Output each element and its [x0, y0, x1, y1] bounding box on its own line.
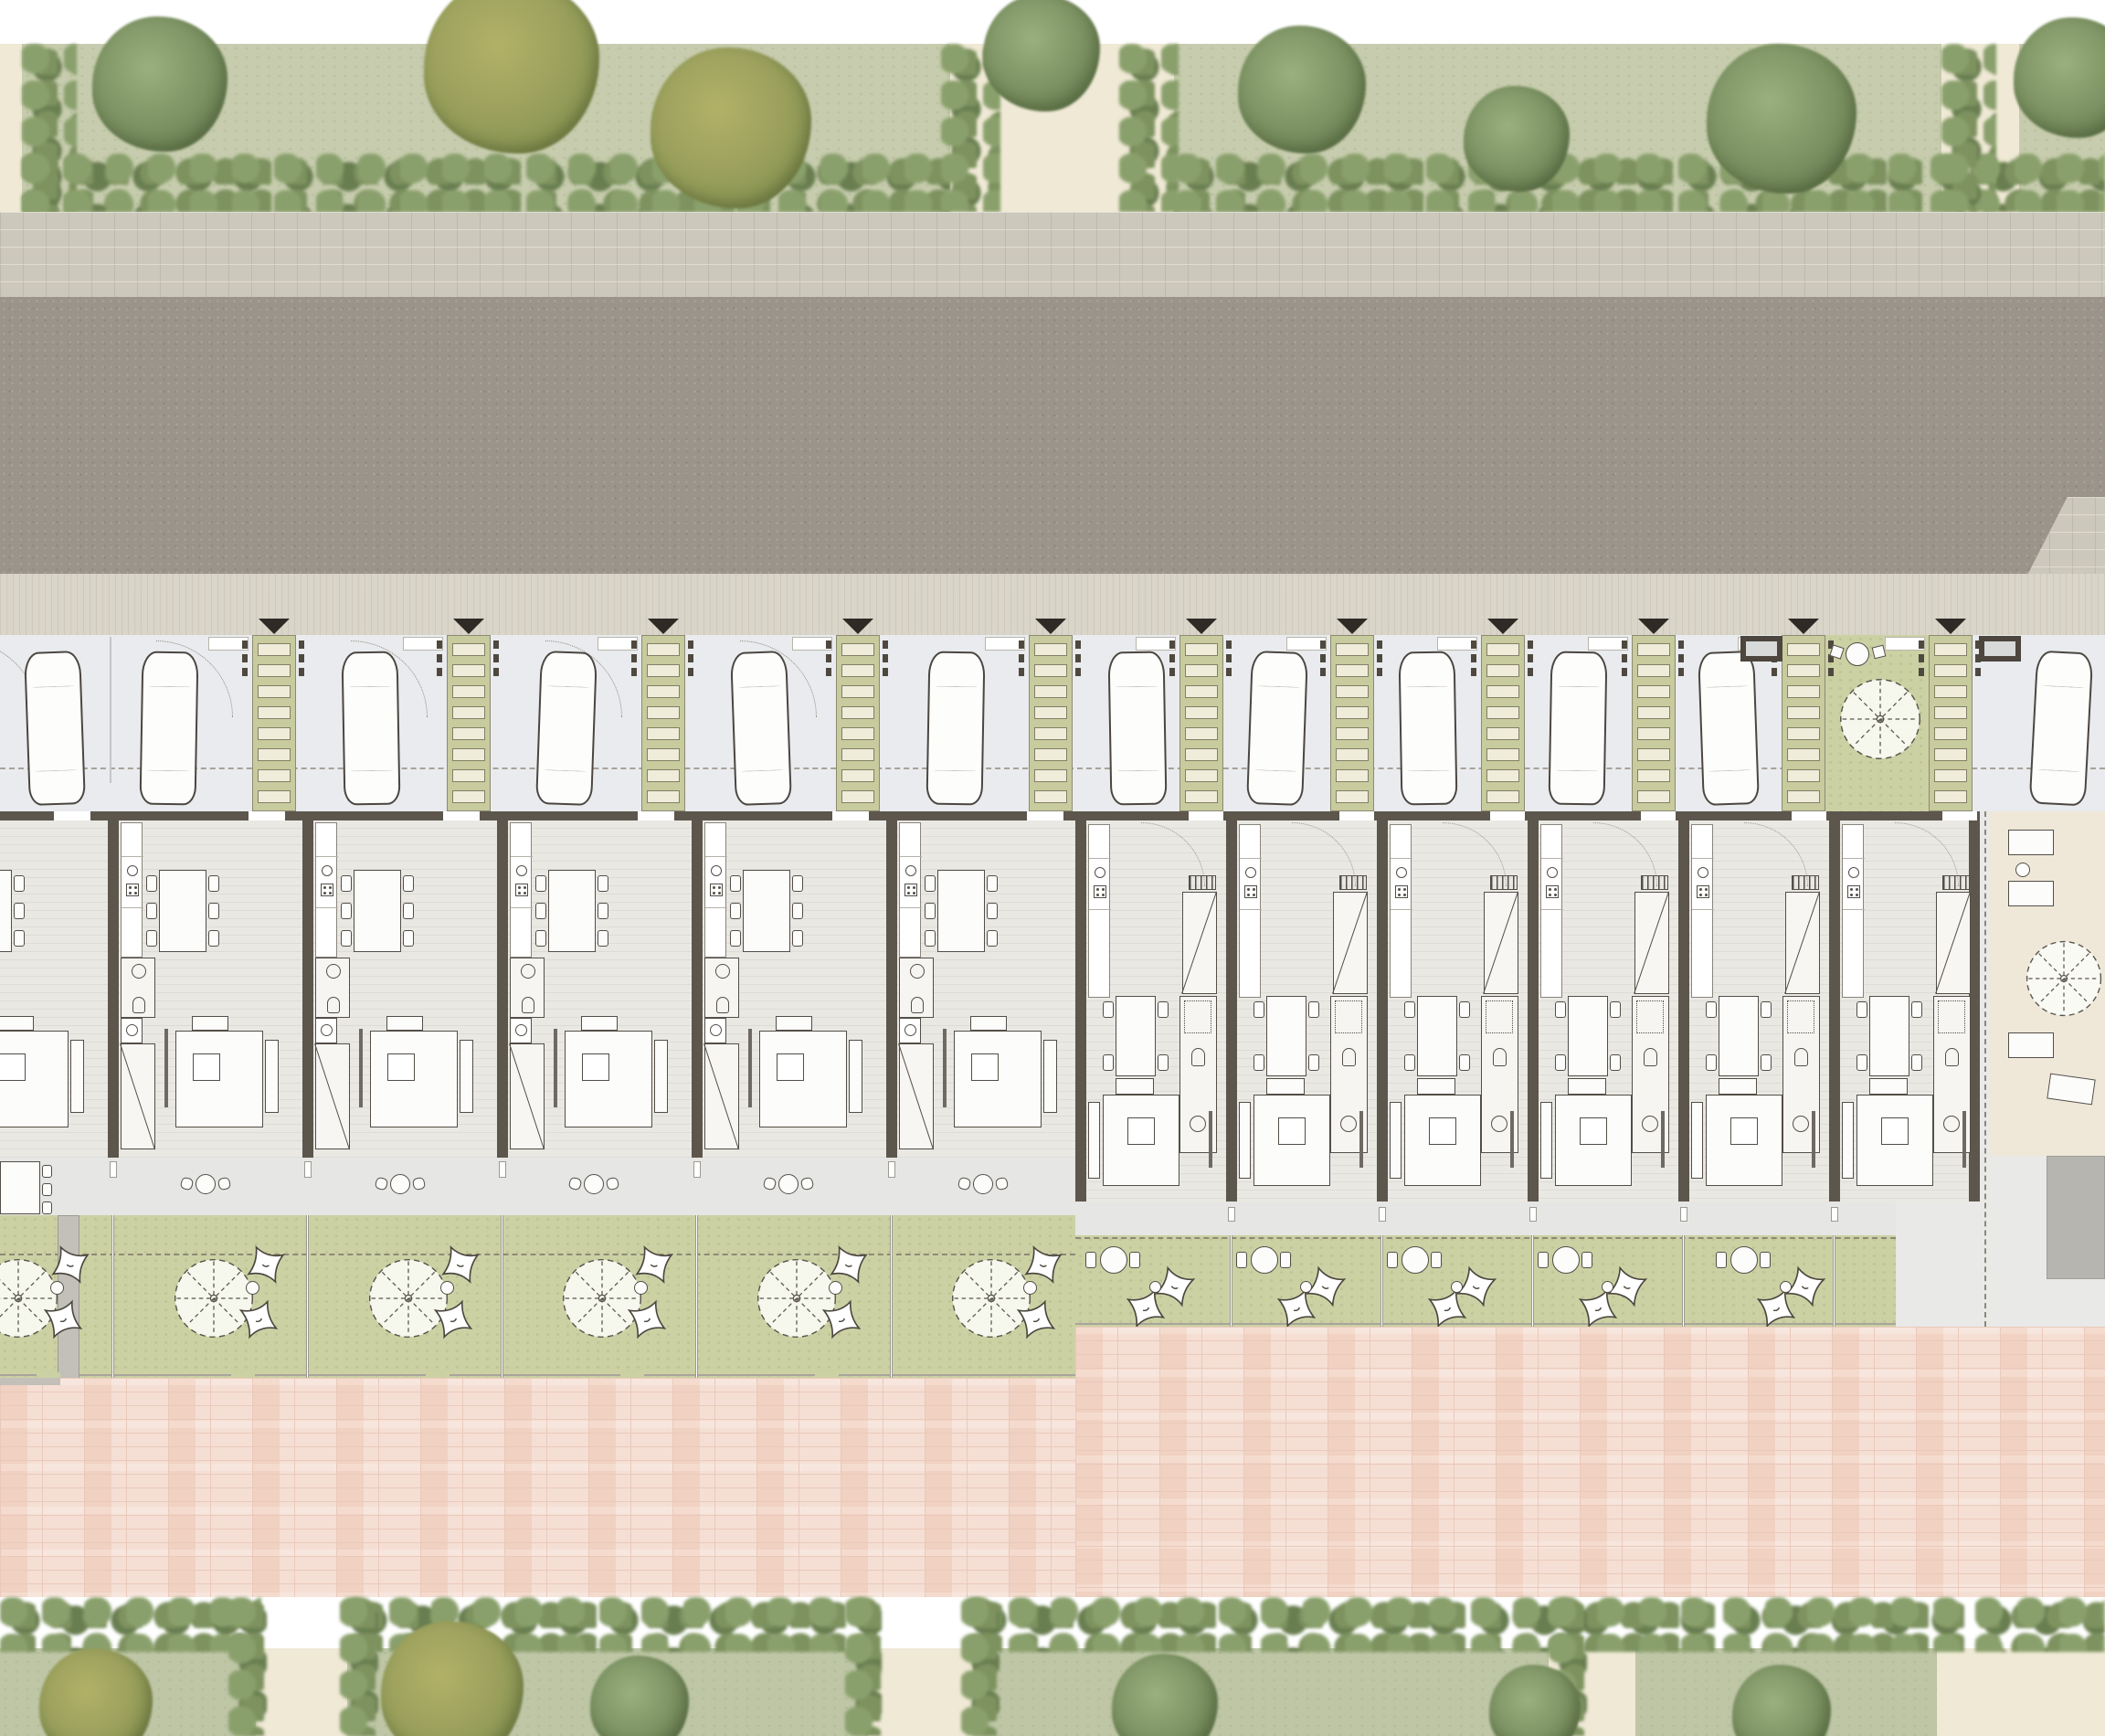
sofa-table [971, 1053, 999, 1081]
stepping-stone [1787, 643, 1820, 656]
wall-end-dash [437, 654, 442, 662]
basin-icon [1943, 1116, 1960, 1132]
stepping-stone [841, 748, 874, 761]
chair [1761, 1054, 1772, 1071]
side-table [246, 1281, 259, 1295]
car-rear-line [1117, 770, 1159, 772]
toilet-icon [132, 997, 145, 1013]
chair [792, 875, 803, 892]
car-rear-line [2038, 769, 2080, 772]
kitchen-counter [510, 822, 532, 958]
chair [1555, 1001, 1566, 1018]
stepping-stone [1486, 748, 1519, 761]
stepping-stone [1486, 727, 1519, 740]
wall-end-dash [826, 654, 831, 662]
wall-end-dash [1622, 654, 1627, 662]
wall-end-dash [1320, 640, 1326, 649]
laundry [315, 1018, 337, 1043]
laundry [899, 1018, 921, 1043]
wall-end-dash [1919, 640, 1924, 649]
wall-end-dash [1377, 640, 1382, 649]
tv-icon [943, 1029, 947, 1107]
stove-icon [1697, 885, 1709, 898]
wall-end-dash [688, 654, 693, 662]
car-icon [140, 651, 199, 805]
chair [146, 903, 157, 919]
stepping-stone [647, 706, 680, 719]
burner [1705, 888, 1708, 891]
garden-dashed-line [1075, 1237, 1896, 1239]
lounge-chair-icon [2008, 830, 2054, 855]
toilet-icon [1342, 1048, 1356, 1066]
stove-icon [904, 884, 917, 896]
stepping-stone [1336, 685, 1369, 698]
wall-end-dash [1169, 668, 1175, 676]
basin-icon [132, 964, 146, 979]
sofa-table [582, 1053, 609, 1081]
stove-icon [126, 884, 139, 896]
wall-end-dash [1772, 668, 1777, 676]
burner [129, 892, 132, 894]
stepping-stone [1034, 769, 1067, 782]
wall-end-dash [493, 654, 499, 662]
wall-end-dash [493, 668, 499, 676]
brick-paving [1075, 1327, 2105, 1597]
chair [535, 875, 546, 892]
shower-icon [1184, 1000, 1211, 1033]
wall-end-dash [826, 640, 831, 649]
burner [1247, 888, 1250, 891]
burner [1850, 894, 1853, 896]
burner [1699, 894, 1702, 896]
tree-icon [983, 0, 1100, 111]
garden-fence [1230, 1235, 1232, 1327]
stove-icon [1847, 885, 1860, 898]
car-windshield [349, 686, 391, 688]
stepping-path-icon [1632, 635, 1676, 811]
front-door-gap [54, 811, 90, 820]
entrance-arrow-icon [1935, 619, 1966, 634]
party-wall [108, 811, 119, 1167]
entrance-arrow-icon [453, 619, 484, 634]
shower-icon [1636, 1000, 1664, 1033]
stepping-stone [452, 790, 485, 803]
stepping-path-icon [1929, 635, 1973, 811]
stepping-stone [258, 727, 291, 740]
laundry [510, 1018, 532, 1043]
stove-icon [1094, 885, 1106, 898]
car-icon [1399, 651, 1458, 805]
chair [403, 903, 414, 919]
dining-table-icon [548, 870, 596, 952]
front-door-gap [443, 811, 480, 820]
wall-end-dash [1528, 668, 1533, 676]
counter-line [511, 856, 533, 857]
stepping-stone [452, 664, 485, 677]
wall-end-dash [1919, 654, 1924, 662]
burner [524, 886, 526, 889]
burner [1253, 894, 1255, 896]
tv-icon [554, 1029, 557, 1107]
car-windshield [32, 685, 74, 688]
chair [598, 903, 608, 919]
sofa-table [387, 1053, 415, 1081]
coat-rack-icon [1942, 875, 1970, 890]
wall-end-dash [1019, 668, 1024, 676]
party-wall [302, 811, 313, 1167]
sofa-back-cushion [1869, 1078, 1908, 1095]
hedge-row-vertical [845, 1597, 882, 1736]
bistro-table-icon [778, 1174, 799, 1194]
stepping-stone [452, 769, 485, 782]
stepping-stone [1637, 727, 1670, 740]
sofa-table [1730, 1117, 1758, 1145]
wall-end-dash [883, 668, 888, 676]
party-wall [1678, 811, 1689, 1211]
car-rear-line [1709, 769, 1751, 772]
chair [1103, 1001, 1114, 1018]
stepping-stone [1787, 727, 1820, 740]
basin-icon [1642, 1116, 1658, 1132]
side-table [1149, 1281, 1161, 1293]
stepping-stone [1185, 685, 1218, 698]
stepping-stone [1185, 643, 1218, 656]
burner [1403, 888, 1406, 891]
wall-end-dash [1471, 640, 1476, 649]
burner [1398, 888, 1401, 891]
burner [713, 886, 715, 889]
wall-end-dash [1320, 654, 1326, 662]
front-door-gap [1490, 811, 1525, 820]
sofa-icon [175, 1031, 263, 1127]
chair [1911, 1001, 1922, 1018]
chair [1856, 1054, 1867, 1071]
front-door-gap [1792, 811, 1826, 820]
sink-icon [127, 865, 138, 876]
entrance-arrow-icon [1035, 619, 1066, 634]
chair [1253, 1054, 1264, 1071]
shower-icon [1486, 1000, 1513, 1033]
car-windshield [149, 686, 191, 688]
wall-end-dash [1622, 668, 1627, 676]
garden-fence [1833, 1235, 1835, 1327]
car-rear-line [1254, 769, 1296, 772]
stepping-stone [841, 769, 874, 782]
terrace-post [1228, 1207, 1235, 1222]
stepping-stone [1934, 727, 1967, 740]
wall-end-dash [1226, 640, 1232, 649]
chair [1610, 1054, 1621, 1071]
kitchen-counter [1088, 824, 1110, 998]
burner [524, 892, 526, 894]
entrance-arrow-icon [259, 619, 290, 634]
stepping-stone [258, 685, 291, 698]
sofa-back-cushion [1266, 1078, 1305, 1095]
chair [1538, 1252, 1549, 1268]
bistro-table-icon [973, 1174, 993, 1194]
stepping-stone [1787, 748, 1820, 761]
stepping-stone [1934, 685, 1967, 698]
wall-end-dash [1471, 654, 1476, 662]
hedge-row [967, 1597, 2105, 1652]
lounge-chair-icon [2008, 1032, 2054, 1058]
counter-line [1843, 909, 1865, 910]
sofa-back-cushion [776, 1016, 812, 1031]
washer-drum [710, 1024, 722, 1036]
tree-icon [1238, 26, 1366, 153]
left-terrace [0, 1158, 1075, 1215]
basin-icon [521, 964, 535, 979]
stepping-stone [1034, 685, 1067, 698]
stepping-stone [647, 769, 680, 782]
chair [1103, 1054, 1114, 1071]
stepping-stone [1637, 706, 1670, 719]
hedge-row-vertical [961, 1597, 1000, 1736]
front-door-gap [1942, 811, 1977, 820]
car-icon [926, 651, 986, 805]
stepping-stone [1034, 790, 1067, 803]
dining-table-icon [0, 1161, 40, 1214]
chair [1308, 1001, 1319, 1018]
party-wall [497, 811, 508, 1167]
kitchen-counter [1691, 824, 1713, 998]
bathroom [704, 958, 739, 1018]
tree-icon [92, 16, 227, 152]
party-wall [1829, 811, 1840, 1211]
chair [1158, 1054, 1169, 1071]
stepping-stone [258, 664, 291, 677]
kitchen-counter [315, 822, 337, 958]
wall-end-dash [1226, 668, 1232, 676]
wall-end-dash [1377, 668, 1382, 676]
side-table [829, 1281, 842, 1295]
wall-end-dash [493, 640, 499, 649]
wall-end-dash [242, 640, 248, 649]
hedge-row-vertical [22, 44, 77, 212]
chair [1581, 1252, 1592, 1268]
armchair [460, 1040, 473, 1113]
chair [1459, 1001, 1470, 1018]
stepping-stone [647, 790, 680, 803]
counter-line [1240, 909, 1262, 910]
sofa-table [1429, 1117, 1456, 1145]
chair [1158, 1001, 1169, 1018]
stepping-stone [1336, 748, 1369, 761]
side-table [1451, 1281, 1463, 1293]
bottom-garden-band [0, 1597, 2105, 1736]
burner [1102, 888, 1105, 891]
stepping-stone [1637, 769, 1670, 782]
stepping-stone [1934, 664, 1967, 677]
basin-icon [715, 964, 730, 979]
sink-icon [516, 865, 527, 876]
chair [535, 930, 546, 947]
stepping-stone [452, 748, 485, 761]
dining-table-icon [1568, 996, 1608, 1076]
wall-end-dash [1678, 654, 1684, 662]
road-corner-paving [2026, 497, 2105, 574]
dining-table-icon [0, 870, 12, 952]
car-icon [1698, 651, 1760, 806]
tree-icon [1707, 44, 1856, 194]
chair [208, 875, 219, 892]
chair [925, 930, 936, 947]
stepping-stone [841, 685, 874, 698]
chair [208, 930, 219, 947]
sofa-table [193, 1053, 220, 1081]
coat-rack-icon [1339, 875, 1367, 890]
stove-icon [710, 884, 723, 896]
stepping-stone [1336, 769, 1369, 782]
chair [341, 930, 352, 947]
sink-icon [1095, 867, 1105, 878]
garden-dashed-line [0, 1254, 1075, 1255]
burner [134, 886, 137, 889]
counter-line [122, 907, 143, 908]
burner [718, 886, 721, 889]
sofa-back-cushion [1417, 1078, 1455, 1095]
stepping-stone [1185, 748, 1218, 761]
coat-rack-icon [1490, 875, 1518, 890]
car-windshield [1116, 686, 1158, 688]
wall-end-dash [1828, 668, 1834, 676]
car-windshield [547, 685, 589, 688]
wall-end-dash [299, 668, 304, 676]
wall-end-dash [1075, 654, 1081, 662]
sink-icon [1848, 867, 1859, 878]
side-table [440, 1281, 454, 1295]
party-wall [1075, 811, 1086, 1211]
gray-paving-corner [0, 1378, 60, 1385]
chair [1129, 1252, 1140, 1268]
lounge-chair-icon [2008, 881, 2054, 906]
side-table [1602, 1281, 1613, 1293]
tv-icon [164, 1029, 168, 1107]
stepping-stone [1185, 790, 1218, 803]
terrace-post [499, 1161, 506, 1178]
stove-icon [1546, 885, 1559, 898]
dining-table-icon [1266, 996, 1306, 1076]
stepping-stone [1486, 664, 1519, 677]
burner [1247, 894, 1250, 896]
burner [323, 886, 326, 889]
toilet-icon [1644, 1048, 1657, 1066]
burner [718, 892, 721, 894]
chair [1760, 1252, 1771, 1268]
site-plan-canvas: PEATONAL [0, 0, 2105, 1736]
wall-end-dash [688, 640, 693, 649]
burner [1850, 888, 1853, 891]
wall-end-dash [1528, 654, 1533, 662]
entrance-arrow-icon [1337, 619, 1368, 634]
burner [1096, 888, 1099, 891]
burner [1253, 888, 1255, 891]
toilet-icon [1945, 1048, 1959, 1066]
chair [42, 1165, 52, 1178]
wall-end-dash [1678, 640, 1684, 649]
garden-fence [1682, 1235, 1685, 1327]
wall-end-dash [631, 640, 637, 649]
basin-icon [1491, 1116, 1507, 1132]
car-icon [535, 651, 598, 806]
chair [1085, 1252, 1096, 1268]
burner [713, 892, 715, 894]
coat-rack-icon [1189, 875, 1216, 890]
stepping-stone [1185, 664, 1218, 677]
side-path [1896, 1201, 1980, 1327]
counter-line [316, 856, 338, 857]
round-table-icon [1402, 1246, 1429, 1274]
wall-end-dash [1975, 668, 1981, 676]
stepping-stone [1034, 664, 1067, 677]
chair [1761, 1001, 1772, 1018]
stepping-stone [1934, 748, 1967, 761]
counter-line [1692, 909, 1714, 910]
basin-icon [910, 964, 925, 979]
stepping-stone [258, 706, 291, 719]
chair [1555, 1054, 1566, 1071]
sink-icon [905, 865, 916, 876]
wall-end-dash [1622, 640, 1627, 649]
terrace-post [110, 1161, 117, 1178]
stepping-stone [1185, 727, 1218, 740]
chair [403, 930, 414, 947]
sink-icon [1547, 867, 1558, 878]
front-door-gap [1027, 811, 1063, 820]
garden-fence [1380, 1235, 1383, 1327]
side-table [1023, 1281, 1037, 1295]
stepping-stone [1637, 664, 1670, 677]
hedge-row-vertical [1941, 44, 1996, 212]
counter-line [1391, 909, 1412, 910]
car-rear-line [1556, 770, 1598, 772]
side-table [50, 1281, 64, 1295]
burner [1554, 894, 1557, 896]
burner [329, 886, 332, 889]
burner [913, 886, 915, 889]
front-door-gap [1339, 811, 1374, 820]
chair [14, 875, 25, 892]
chair [1610, 1001, 1621, 1018]
entrance-arrow-icon [842, 619, 873, 634]
stepping-stone [647, 748, 680, 761]
counter-line [705, 907, 727, 908]
chair [42, 1201, 52, 1214]
sofa-back-cushion [1116, 1078, 1154, 1095]
stepping-stone [1185, 706, 1218, 719]
chair [1280, 1252, 1291, 1268]
wall-end-dash [1226, 654, 1232, 662]
side-table [1780, 1281, 1792, 1293]
side-table [634, 1281, 648, 1295]
stepping-path-icon [1029, 635, 1073, 811]
chair [987, 930, 998, 947]
toilet-icon [1794, 1048, 1808, 1066]
terrace-post [1831, 1207, 1838, 1222]
chair [598, 930, 608, 947]
stepping-stone [1787, 790, 1820, 803]
front-door-gap [832, 811, 869, 820]
sofa-back-cushion [192, 1016, 228, 1031]
stepping-stone [452, 643, 485, 656]
top-garden-band [0, 44, 2105, 212]
dining-table-icon [1869, 996, 1909, 1076]
burner [1705, 894, 1708, 896]
asphalt-road [0, 297, 2105, 574]
tv-icon [748, 1029, 752, 1107]
stepping-stone [1336, 727, 1369, 740]
sofa-back-cushion [970, 1016, 1007, 1031]
